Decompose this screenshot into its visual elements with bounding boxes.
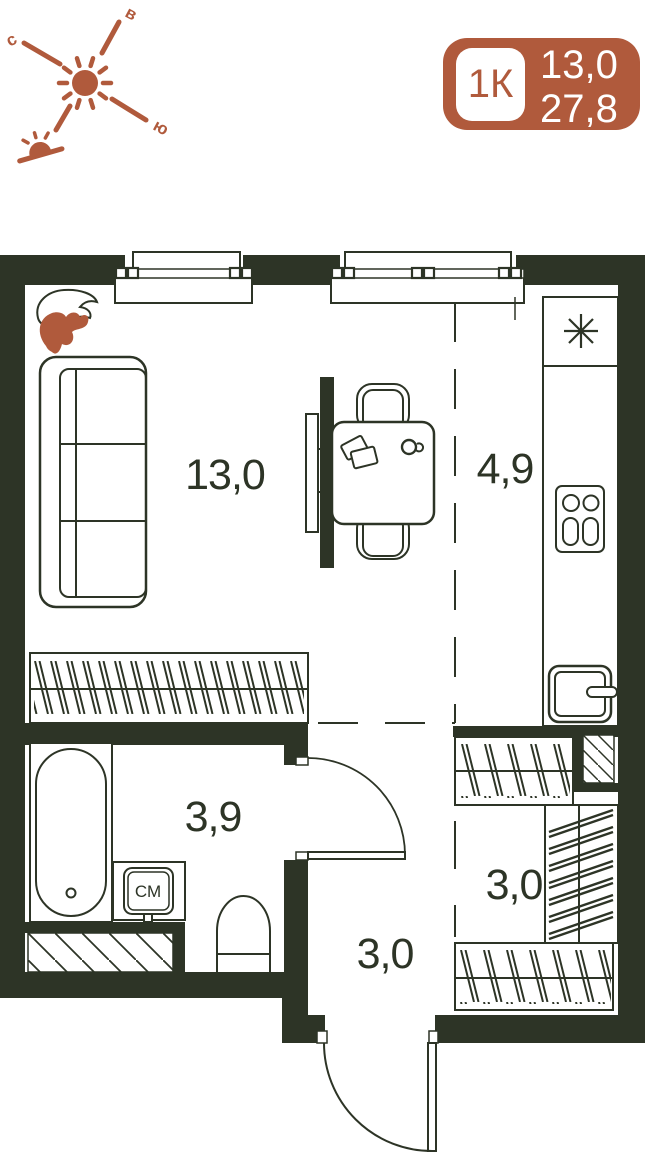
shelving-unit <box>545 805 618 943</box>
washing-machine: СМ <box>113 862 185 922</box>
door-arc <box>308 758 405 855</box>
plant-icon <box>37 290 97 354</box>
unit-type-chip: 1К <box>456 48 525 121</box>
total-area-value: 27,8 <box>540 87 618 131</box>
room-label-bathroom: 3,9 <box>185 793 242 841</box>
kitchen-sink <box>549 666 617 722</box>
unit-type-label: 1К <box>468 62 514 107</box>
shaft-hatch-bathroom <box>28 933 173 972</box>
sofa <box>40 357 146 607</box>
compass-east-label: в <box>122 3 140 25</box>
room-label-living: 13,0 <box>185 451 265 499</box>
compass-rose: с в ю <box>3 3 172 161</box>
door-leaf <box>428 1043 436 1151</box>
compass-south-label: ю <box>150 116 172 140</box>
area-values: 13,0 27,8 <box>540 43 618 131</box>
cup-icon <box>402 440 416 454</box>
entrance-door <box>317 1031 438 1151</box>
floor-plan-canvas: СМ <box>0 0 645 1153</box>
room-label-kitchen: 4,9 <box>477 445 534 493</box>
area-badge: 1К 13,0 27,8 <box>443 38 640 130</box>
bathtub <box>30 743 112 922</box>
sun-icon <box>72 70 98 96</box>
washing-machine-label: СМ <box>135 882 161 901</box>
compass-north-label: с <box>3 29 21 50</box>
window-kitchen <box>331 252 524 303</box>
wardrobe-bottom-right <box>455 943 613 1010</box>
living-area-value: 13,0 <box>540 43 618 87</box>
bathroom-door <box>296 757 405 860</box>
floorplan-page: СМ <box>0 0 645 1153</box>
toilet <box>217 896 270 972</box>
room-label-wardrobe: 3,0 <box>486 861 543 909</box>
cooktop <box>556 486 604 552</box>
shaft-hatch-kitchen <box>583 735 614 783</box>
door-arc <box>324 1043 432 1151</box>
wardrobe-living <box>30 653 308 723</box>
fridge-snowflake-icon <box>564 314 598 348</box>
door-leaf <box>308 852 405 859</box>
window-living <box>115 252 252 303</box>
tv-panel <box>306 377 334 568</box>
dining-table <box>332 422 434 524</box>
room-label-hallway: 3,0 <box>357 930 414 978</box>
wardrobe-top-right <box>455 737 573 805</box>
